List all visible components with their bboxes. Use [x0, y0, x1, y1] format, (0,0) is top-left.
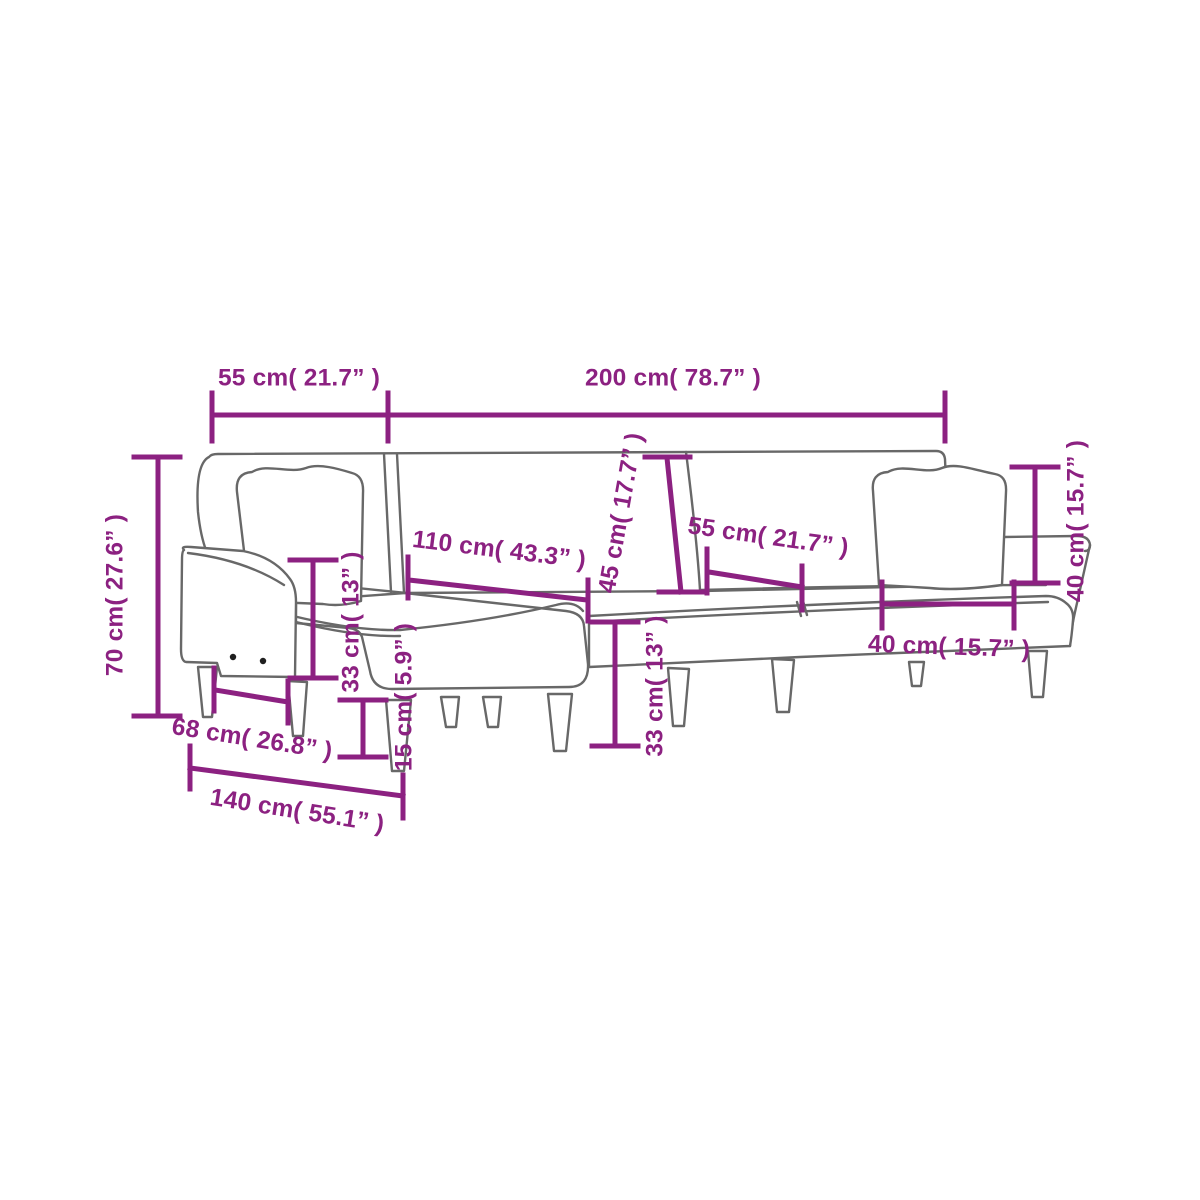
dim-leg-15-line	[340, 700, 386, 757]
dim-back-cushion-40-label: 40 cm( 15.7” )	[1062, 440, 1089, 602]
dim-top-200: 200 cm( 78.7” )	[388, 364, 945, 441]
dim-back-cushion-40: 40 cm( 15.7” )	[1012, 440, 1089, 602]
dim-top-200-line	[388, 393, 945, 441]
dim-top-55-line	[212, 393, 388, 441]
dim-width-68-label: 68 cm( 26.8” )	[170, 713, 334, 765]
armrest-screw-1	[230, 654, 236, 660]
dim-top-200-label: 200 cm( 78.7” )	[585, 364, 761, 391]
pillow-right	[873, 466, 1006, 589]
leg	[548, 694, 572, 751]
dim-top-55-label: 55 cm( 21.7” )	[218, 364, 380, 391]
armrest-screw-2	[260, 658, 266, 664]
leg	[668, 668, 689, 726]
leg	[441, 697, 459, 727]
dim-height-70-label: 70 cm( 27.6” )	[101, 514, 128, 676]
armrest-left	[181, 547, 296, 677]
dim-height-70-line	[134, 457, 180, 716]
leg	[772, 659, 794, 712]
leg	[483, 697, 501, 727]
leg	[909, 662, 924, 686]
dim-seat-40-label: 40 cm( 15.7” )	[868, 631, 1031, 664]
dim-depth-140: 140 cm( 55.1” )	[190, 746, 403, 838]
leg	[288, 681, 307, 736]
dim-width-68: 68 cm( 26.8” )	[170, 668, 334, 765]
leg	[1028, 651, 1047, 697]
dim-height-70: 70 cm( 27.6” )	[101, 457, 180, 716]
dim-back-cushion-40-line	[1012, 467, 1058, 583]
dim-top-55: 55 cm( 21.7” )	[212, 364, 388, 441]
dim-seat-33-center-label: 33 cm( 13” )	[641, 615, 668, 756]
diagram-canvas: 55 cm( 21.7” ) 200 cm( 78.7” ) 70 cm( 27…	[0, 0, 1200, 1200]
dim-seat-33-left-label: 33 cm( 13” )	[337, 551, 364, 692]
dim-leg-15-label: 15 cm( 5.9” )	[390, 623, 417, 771]
sofa-dimension-diagram: 55 cm( 21.7” ) 200 cm( 78.7” ) 70 cm( 27…	[0, 0, 1200, 1200]
